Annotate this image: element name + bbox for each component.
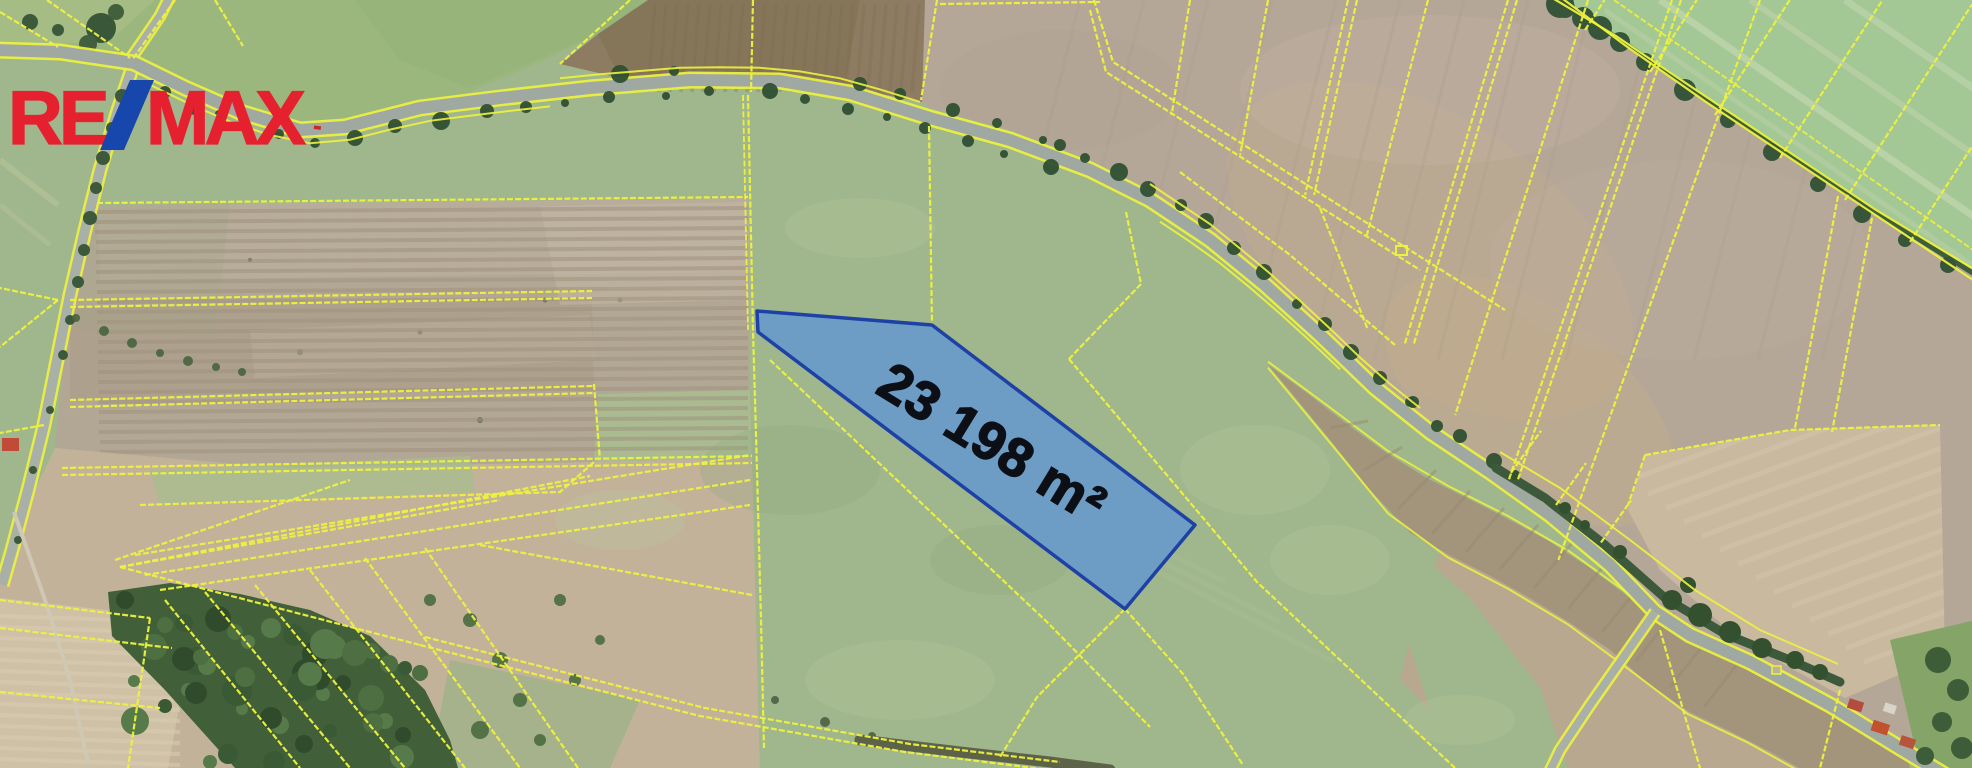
svg-text:MAX: MAX <box>146 76 306 161</box>
svg-text:RE: RE <box>8 76 107 161</box>
